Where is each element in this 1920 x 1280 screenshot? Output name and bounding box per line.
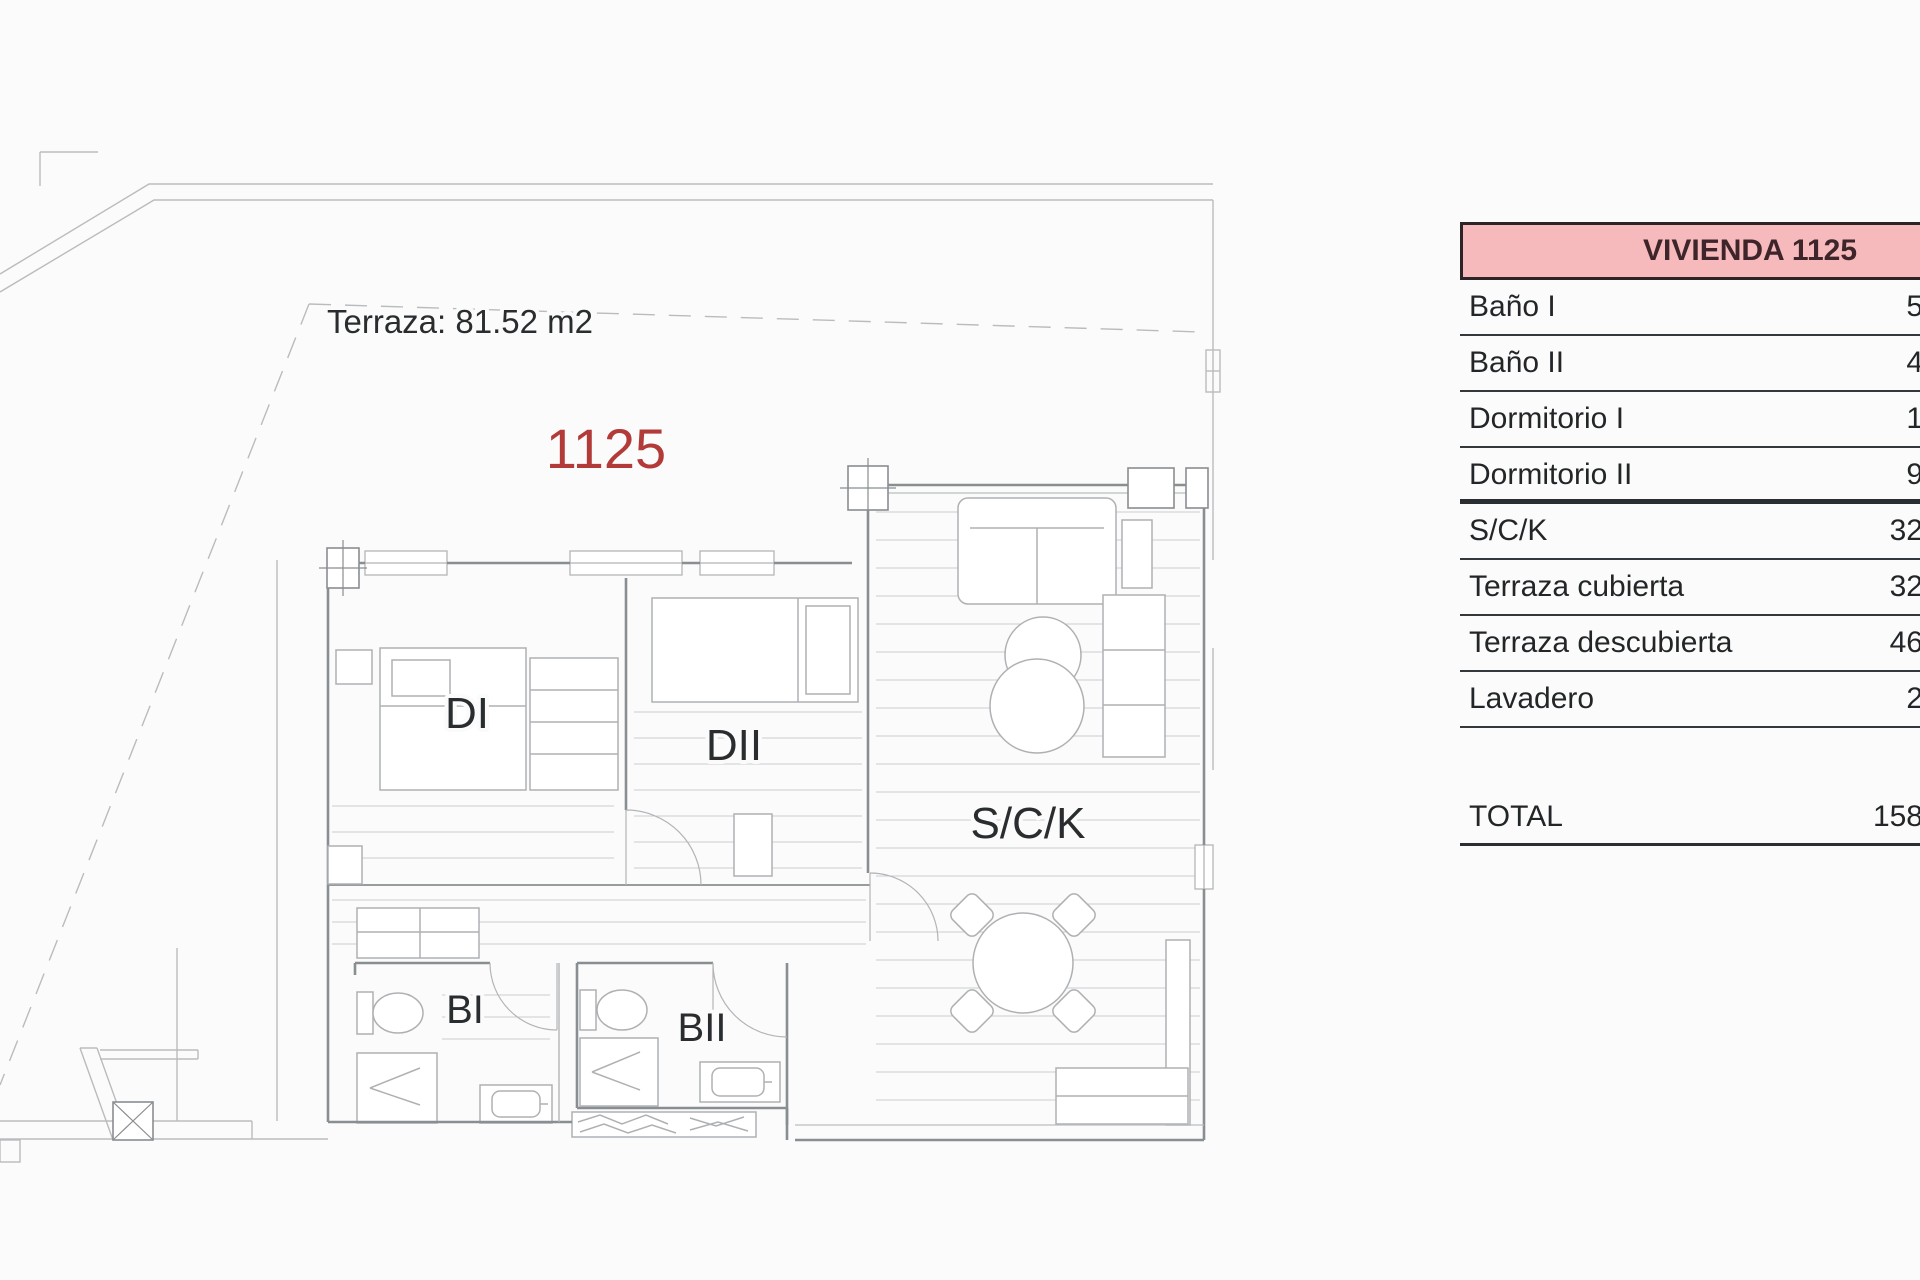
unit-number-label: 1125 <box>546 417 666 480</box>
room-label-b1: BI <box>446 988 484 1032</box>
toilet-b1 <box>357 992 423 1034</box>
surface-table-header: VIVIENDA 1125 <box>1460 222 1920 280</box>
hall-wardrobe <box>357 908 479 958</box>
table-gap <box>1460 728 1920 790</box>
total-value: 158 <box>1460 790 1920 844</box>
terrace-area-label: Terraza: 81.52 m2 <box>327 303 593 340</box>
row-value: 1 <box>1460 392 1920 446</box>
window-d1 <box>365 551 447 575</box>
room-label-sck: S/C/K <box>971 799 1086 848</box>
dining-table <box>973 913 1073 1013</box>
sofa <box>958 498 1116 604</box>
bed-d2 <box>652 598 858 702</box>
door-swings <box>490 810 938 1037</box>
nightstand-d2 <box>734 814 772 876</box>
table-row: Baño II 4 <box>1460 336 1920 392</box>
row-value: 46 <box>1460 616 1920 670</box>
room-label-d1: DI <box>445 689 489 738</box>
table-total-row: TOTAL 158 <box>1460 790 1920 846</box>
sink-b2 <box>700 1062 780 1102</box>
row-value: 2 <box>1460 672 1920 726</box>
table-row: Dormitorio II 9 <box>1460 448 1920 504</box>
row-value: 4 <box>1460 336 1920 390</box>
nightstand-d1 <box>336 650 372 684</box>
table-row: S/C/K 32 <box>1460 504 1920 560</box>
room-label-d2: DII <box>706 721 762 770</box>
toilet-b2 <box>580 990 647 1030</box>
sink-b1 <box>480 1085 552 1123</box>
tv-sideboard <box>1103 595 1165 757</box>
shower-b2 <box>580 1038 658 1106</box>
table-row: Lavadero 2 <box>1460 672 1920 728</box>
room-label-b2: BII <box>678 1006 727 1050</box>
window-sck <box>1195 845 1213 889</box>
window-d2b <box>700 551 774 575</box>
row-value: 9 <box>1460 448 1920 502</box>
floorplan-sheet: Terraza: 81.52 m2 1125 DI DII S/C/K BI B… <box>0 0 1920 1280</box>
pillar-cross-mid <box>840 458 896 518</box>
kitchen-cabinet-top <box>1122 520 1152 588</box>
table-row: Baño I 5 <box>1460 280 1920 336</box>
armchair-seat <box>990 659 1084 753</box>
pillar-right-b <box>1186 468 1208 508</box>
row-value: 32 <box>1460 504 1920 558</box>
table-row: Terraza cubierta 32 <box>1460 560 1920 616</box>
pillar-cross-left <box>319 540 367 596</box>
pillar-x-bottom-left <box>113 1102 153 1140</box>
window-d2a <box>570 551 682 575</box>
row-value: 32 <box>1460 560 1920 614</box>
surface-table: VIVIENDA 1125 Baño I 5 Baño II 4 Dormito… <box>1460 222 1920 846</box>
shower-b1 <box>357 1053 437 1123</box>
table-row: Terraza descubierta 46 <box>1460 616 1920 672</box>
pillar-right-a <box>1128 468 1174 508</box>
table-row: Dormitorio I 1 <box>1460 392 1920 448</box>
lavadero-hatch <box>572 1112 756 1137</box>
row-value: 5 <box>1460 280 1920 334</box>
wardrobe-d1 <box>530 658 618 790</box>
